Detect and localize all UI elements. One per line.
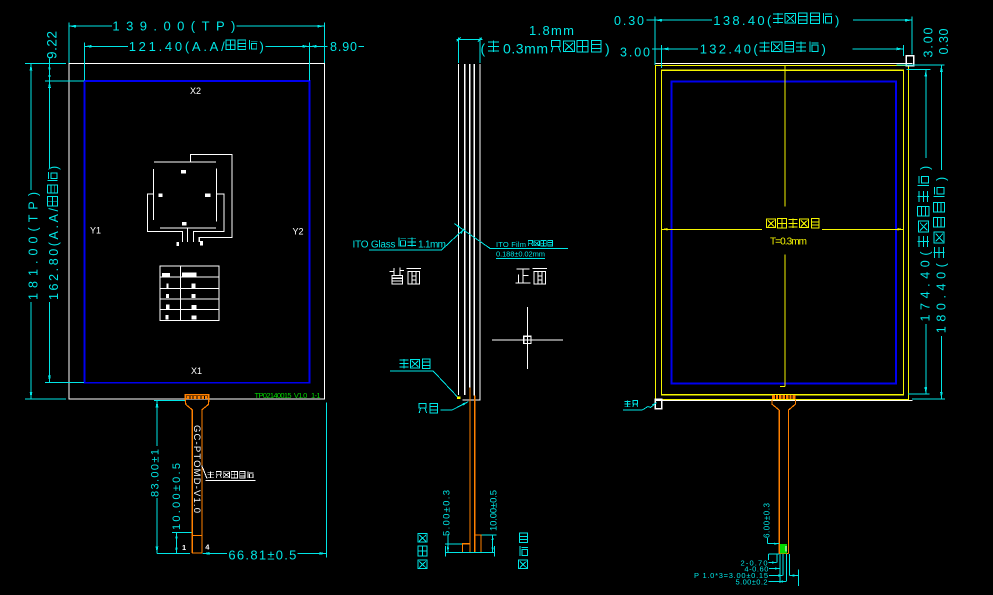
svg-text:121.40(A.A/: 121.40(A.A/ xyxy=(129,39,225,54)
svg-text:T=0.3mm: T=0.3mm xyxy=(770,237,807,248)
svg-text:): ) xyxy=(47,166,61,170)
svg-text:5.00±0.2: 5.00±0.2 xyxy=(736,578,768,587)
svg-text:162.80(A.A/: 162.80(A.A/ xyxy=(47,207,61,300)
svg-text:9.22: 9.22 xyxy=(45,31,60,59)
svg-text:6.00±0.3: 6.00±0.3 xyxy=(763,502,772,538)
svg-text:10.00±0.5: 10.00±0.5 xyxy=(171,463,183,530)
svg-text:GC-PTOMD-V1.0: GC-PTOMD-V1.0 xyxy=(191,425,202,513)
svg-text:174.40(: 174.40( xyxy=(919,251,933,322)
svg-text:ITO Glass: ITO Glass xyxy=(353,240,396,251)
svg-text:132.40(: 132.40( xyxy=(700,41,759,56)
svg-text:3.00: 3.00 xyxy=(620,45,650,59)
svg-text:): ) xyxy=(605,41,610,57)
svg-text:TP02140015 V1.0 1-1: TP02140015 V1.0 1-1 xyxy=(255,391,321,400)
svg-text:8.90: 8.90 xyxy=(330,40,357,54)
svg-text:X1: X1 xyxy=(191,366,202,376)
svg-text:1: 1 xyxy=(182,543,186,552)
svg-text:0.188±0.02mm: 0.188±0.02mm xyxy=(496,250,545,259)
svg-text:): ) xyxy=(822,41,826,56)
svg-text:5.00±0.3: 5.00±0.3 xyxy=(442,490,453,536)
svg-text:Y2: Y2 xyxy=(293,227,304,237)
svg-text:10.00±0.5: 10.00±0.5 xyxy=(489,490,500,531)
svg-text:1.1mm: 1.1mm xyxy=(418,240,446,251)
svg-text:): ) xyxy=(835,13,839,28)
svg-text:): ) xyxy=(260,39,264,54)
svg-text:1.8mm: 1.8mm xyxy=(529,23,574,38)
svg-text:X2: X2 xyxy=(190,86,201,96)
svg-text:): ) xyxy=(919,166,933,170)
svg-text:(: ( xyxy=(481,41,486,57)
svg-text:): ) xyxy=(934,177,948,181)
svg-text:0.30: 0.30 xyxy=(614,14,644,28)
svg-text:0.30: 0.30 xyxy=(937,28,951,54)
svg-text:0.3mm: 0.3mm xyxy=(503,41,548,57)
svg-text:180.40(: 180.40( xyxy=(934,262,948,333)
svg-text:66.81±0.5: 66.81±0.5 xyxy=(228,548,296,563)
svg-text:ITO Film: ITO Film xyxy=(496,240,526,249)
svg-text:Y1: Y1 xyxy=(90,226,101,236)
svg-text:3.00: 3.00 xyxy=(922,27,936,57)
svg-text:138.40(: 138.40( xyxy=(713,13,772,28)
